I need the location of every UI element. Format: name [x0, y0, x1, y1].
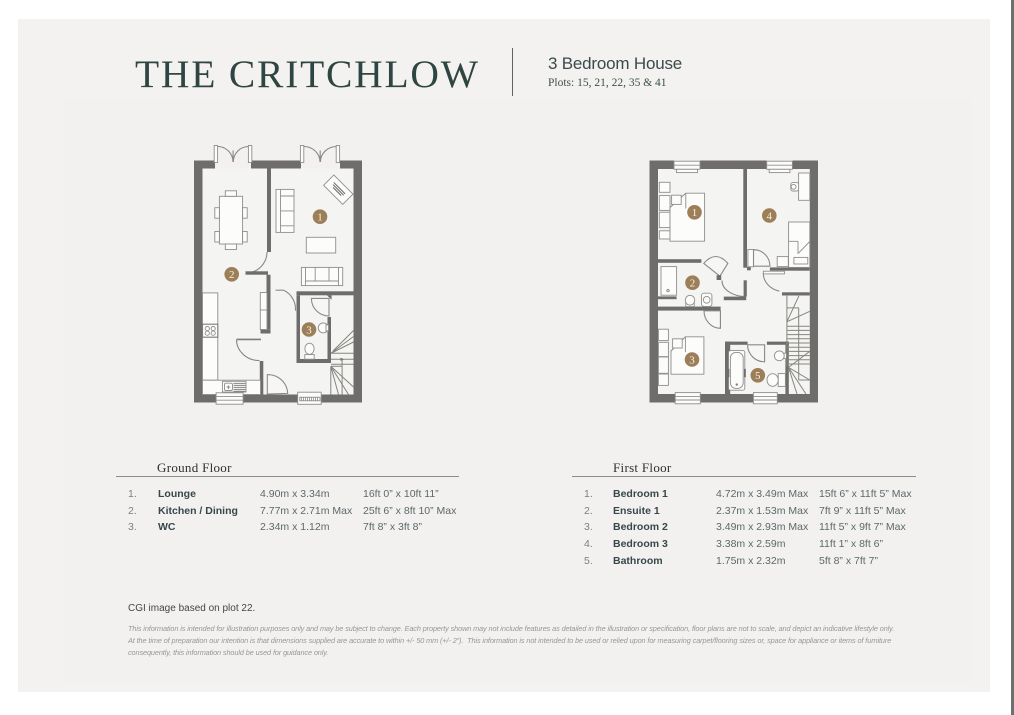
- svg-text:1: 1: [692, 207, 698, 219]
- svg-text:3: 3: [689, 354, 695, 366]
- svg-text:2: 2: [229, 269, 235, 281]
- svg-text:4: 4: [767, 210, 773, 222]
- svg-text:5: 5: [755, 370, 761, 382]
- svg-text:3: 3: [306, 324, 312, 336]
- svg-text:1: 1: [317, 212, 323, 224]
- svg-text:2: 2: [690, 278, 696, 290]
